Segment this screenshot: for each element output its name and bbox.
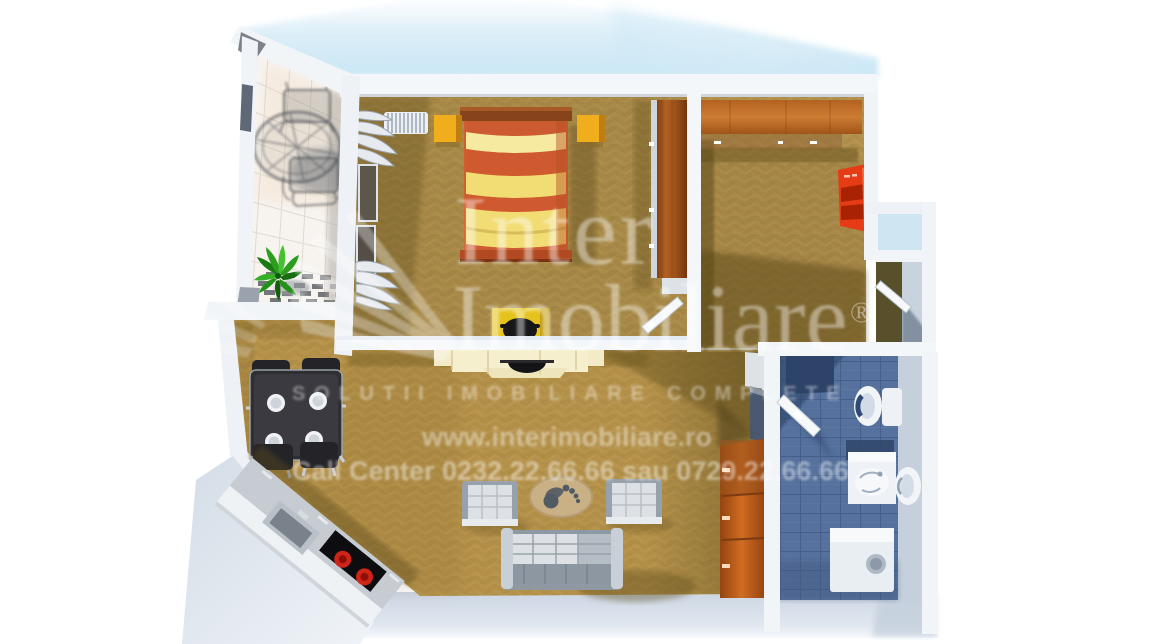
svg-text:www.interimobiliare.ro: www.interimobiliare.ro [421,422,712,452]
svg-text:®: ® [850,296,873,329]
svg-text:SOLUTII IMOBILIARE COMPLETE: SOLUTII IMOBILIARE COMPLETE [292,383,849,405]
svg-text:Imobiliare: Imobiliare [452,265,848,371]
svg-text:Call Center 0232.22.66.66 sau: Call Center 0232.22.66.66 sau 0729.22.66… [292,456,849,486]
